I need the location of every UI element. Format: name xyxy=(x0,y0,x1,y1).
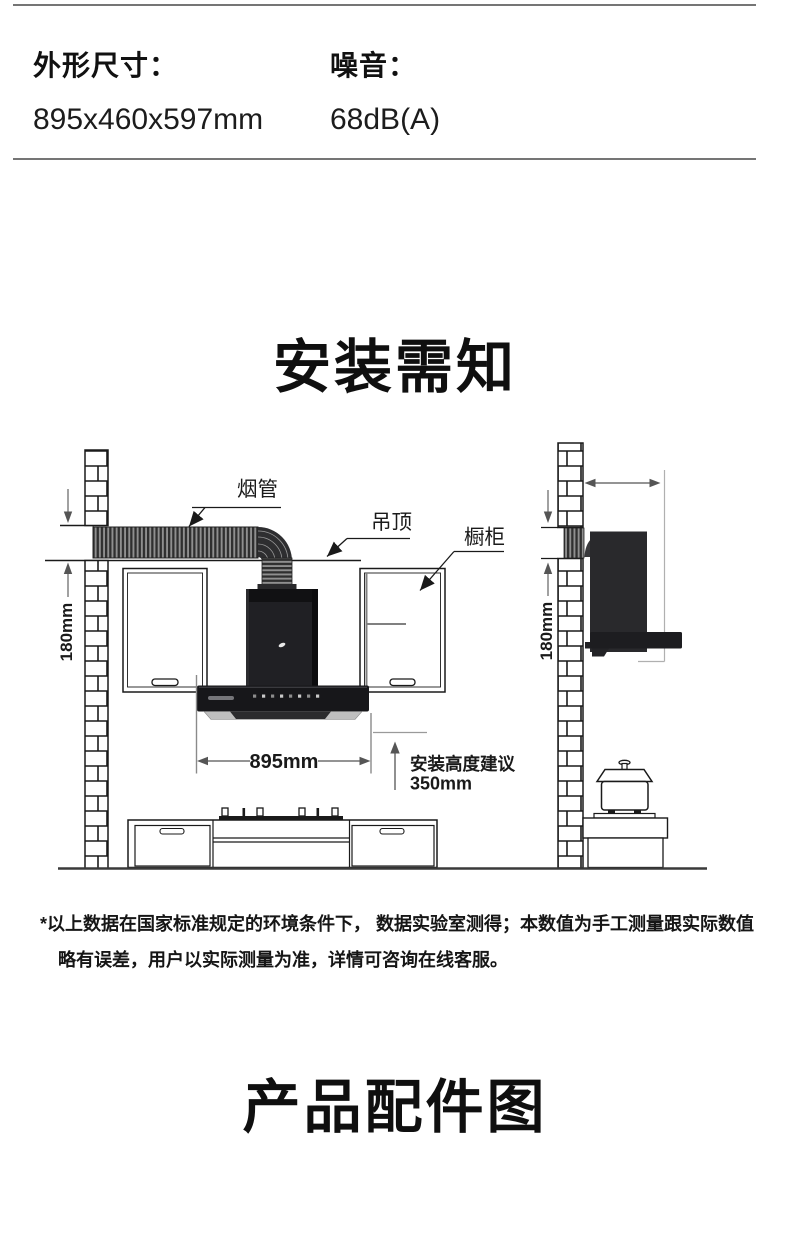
accessories-section-title: 产品配件图 xyxy=(0,1060,790,1144)
gap-dimension-front: 180mm xyxy=(57,489,76,661)
pot-body xyxy=(602,782,649,811)
section-divider xyxy=(13,158,756,160)
top-divider xyxy=(13,4,756,6)
duct-callout: 烟管 xyxy=(189,478,281,527)
ceiling-callout: 吊顶 xyxy=(327,511,412,557)
dimensions-value: 895x460x597mm xyxy=(33,103,263,137)
brick-wall-side-top xyxy=(558,443,583,528)
duct-stub xyxy=(564,528,584,558)
install-section-title: 安装需知 xyxy=(0,320,790,404)
brick-wall-side-bottom xyxy=(558,559,583,869)
pot-lid xyxy=(597,770,652,782)
gap-side-label: 180mm xyxy=(537,602,556,661)
install-height-title: 安装高度建议 xyxy=(410,754,515,774)
gap-dimension-side: 180mm xyxy=(537,490,556,660)
left-drawer-handle xyxy=(160,829,184,835)
spec-noise: 噪音： 68dB(A) xyxy=(330,44,440,137)
hood-width-label: 895mm xyxy=(250,751,319,773)
duct-label: 烟管 xyxy=(237,478,278,501)
left-cabinet xyxy=(123,569,207,693)
install-height-value: 350mm xyxy=(410,774,472,794)
brand-text xyxy=(208,696,234,700)
spec-dimensions: 外形尺寸： 895x460x597mm xyxy=(33,44,263,137)
range-hood-front xyxy=(197,589,369,720)
ceiling-label: 吊顶 xyxy=(371,511,412,534)
left-cabinet-handle xyxy=(152,679,178,686)
cooking-pot xyxy=(594,760,655,818)
range-hood-side xyxy=(585,532,683,657)
hood-grille xyxy=(230,712,331,720)
footnote-line-2: 略有误差，用户以实际测量为准，详情可咨询在线客服。 xyxy=(40,942,762,978)
right-cabinet xyxy=(360,569,445,693)
footnote-line-1: *以上数据在国家标准规定的环境条件下， 数据实验室测得；本数值为手工测量跟实际数… xyxy=(40,906,762,942)
installation-diagram: 180mm 烟管 吊顶 橱柜 xyxy=(0,430,790,890)
front-view: 180mm 烟管 吊顶 橱柜 xyxy=(45,450,515,869)
right-drawer-handle xyxy=(380,829,404,835)
install-height-note: 安装高度建议 350mm xyxy=(373,733,515,794)
cabinet-label: 橱柜 xyxy=(464,526,505,549)
cooktop xyxy=(219,816,343,821)
product-detail-page: 外形尺寸： 895x460x597mm 噪音： 68dB(A) 安装需知 xyxy=(0,0,790,1242)
brick-wall-front-bottom xyxy=(85,561,108,869)
side-stove-cabinet xyxy=(583,818,668,868)
right-cabinet-handle xyxy=(390,679,415,686)
side-view: 180mm xyxy=(537,443,682,868)
gap-front-label: 180mm xyxy=(57,603,76,662)
disclaimer-footnote: *以上数据在国家标准规定的环境条件下， 数据实验室测得；本数值为手工测量跟实际数… xyxy=(40,906,762,978)
dimensions-label: 外形尺寸： xyxy=(33,44,263,84)
kitchen-counter xyxy=(128,808,437,868)
brick-wall-front-top xyxy=(85,450,108,526)
installation-diagram-svg: 180mm 烟管 吊顶 橱柜 xyxy=(0,430,790,890)
noise-label: 噪音： xyxy=(330,44,440,84)
noise-value: 68dB(A) xyxy=(330,103,440,137)
cooktop-knobs xyxy=(222,808,338,816)
